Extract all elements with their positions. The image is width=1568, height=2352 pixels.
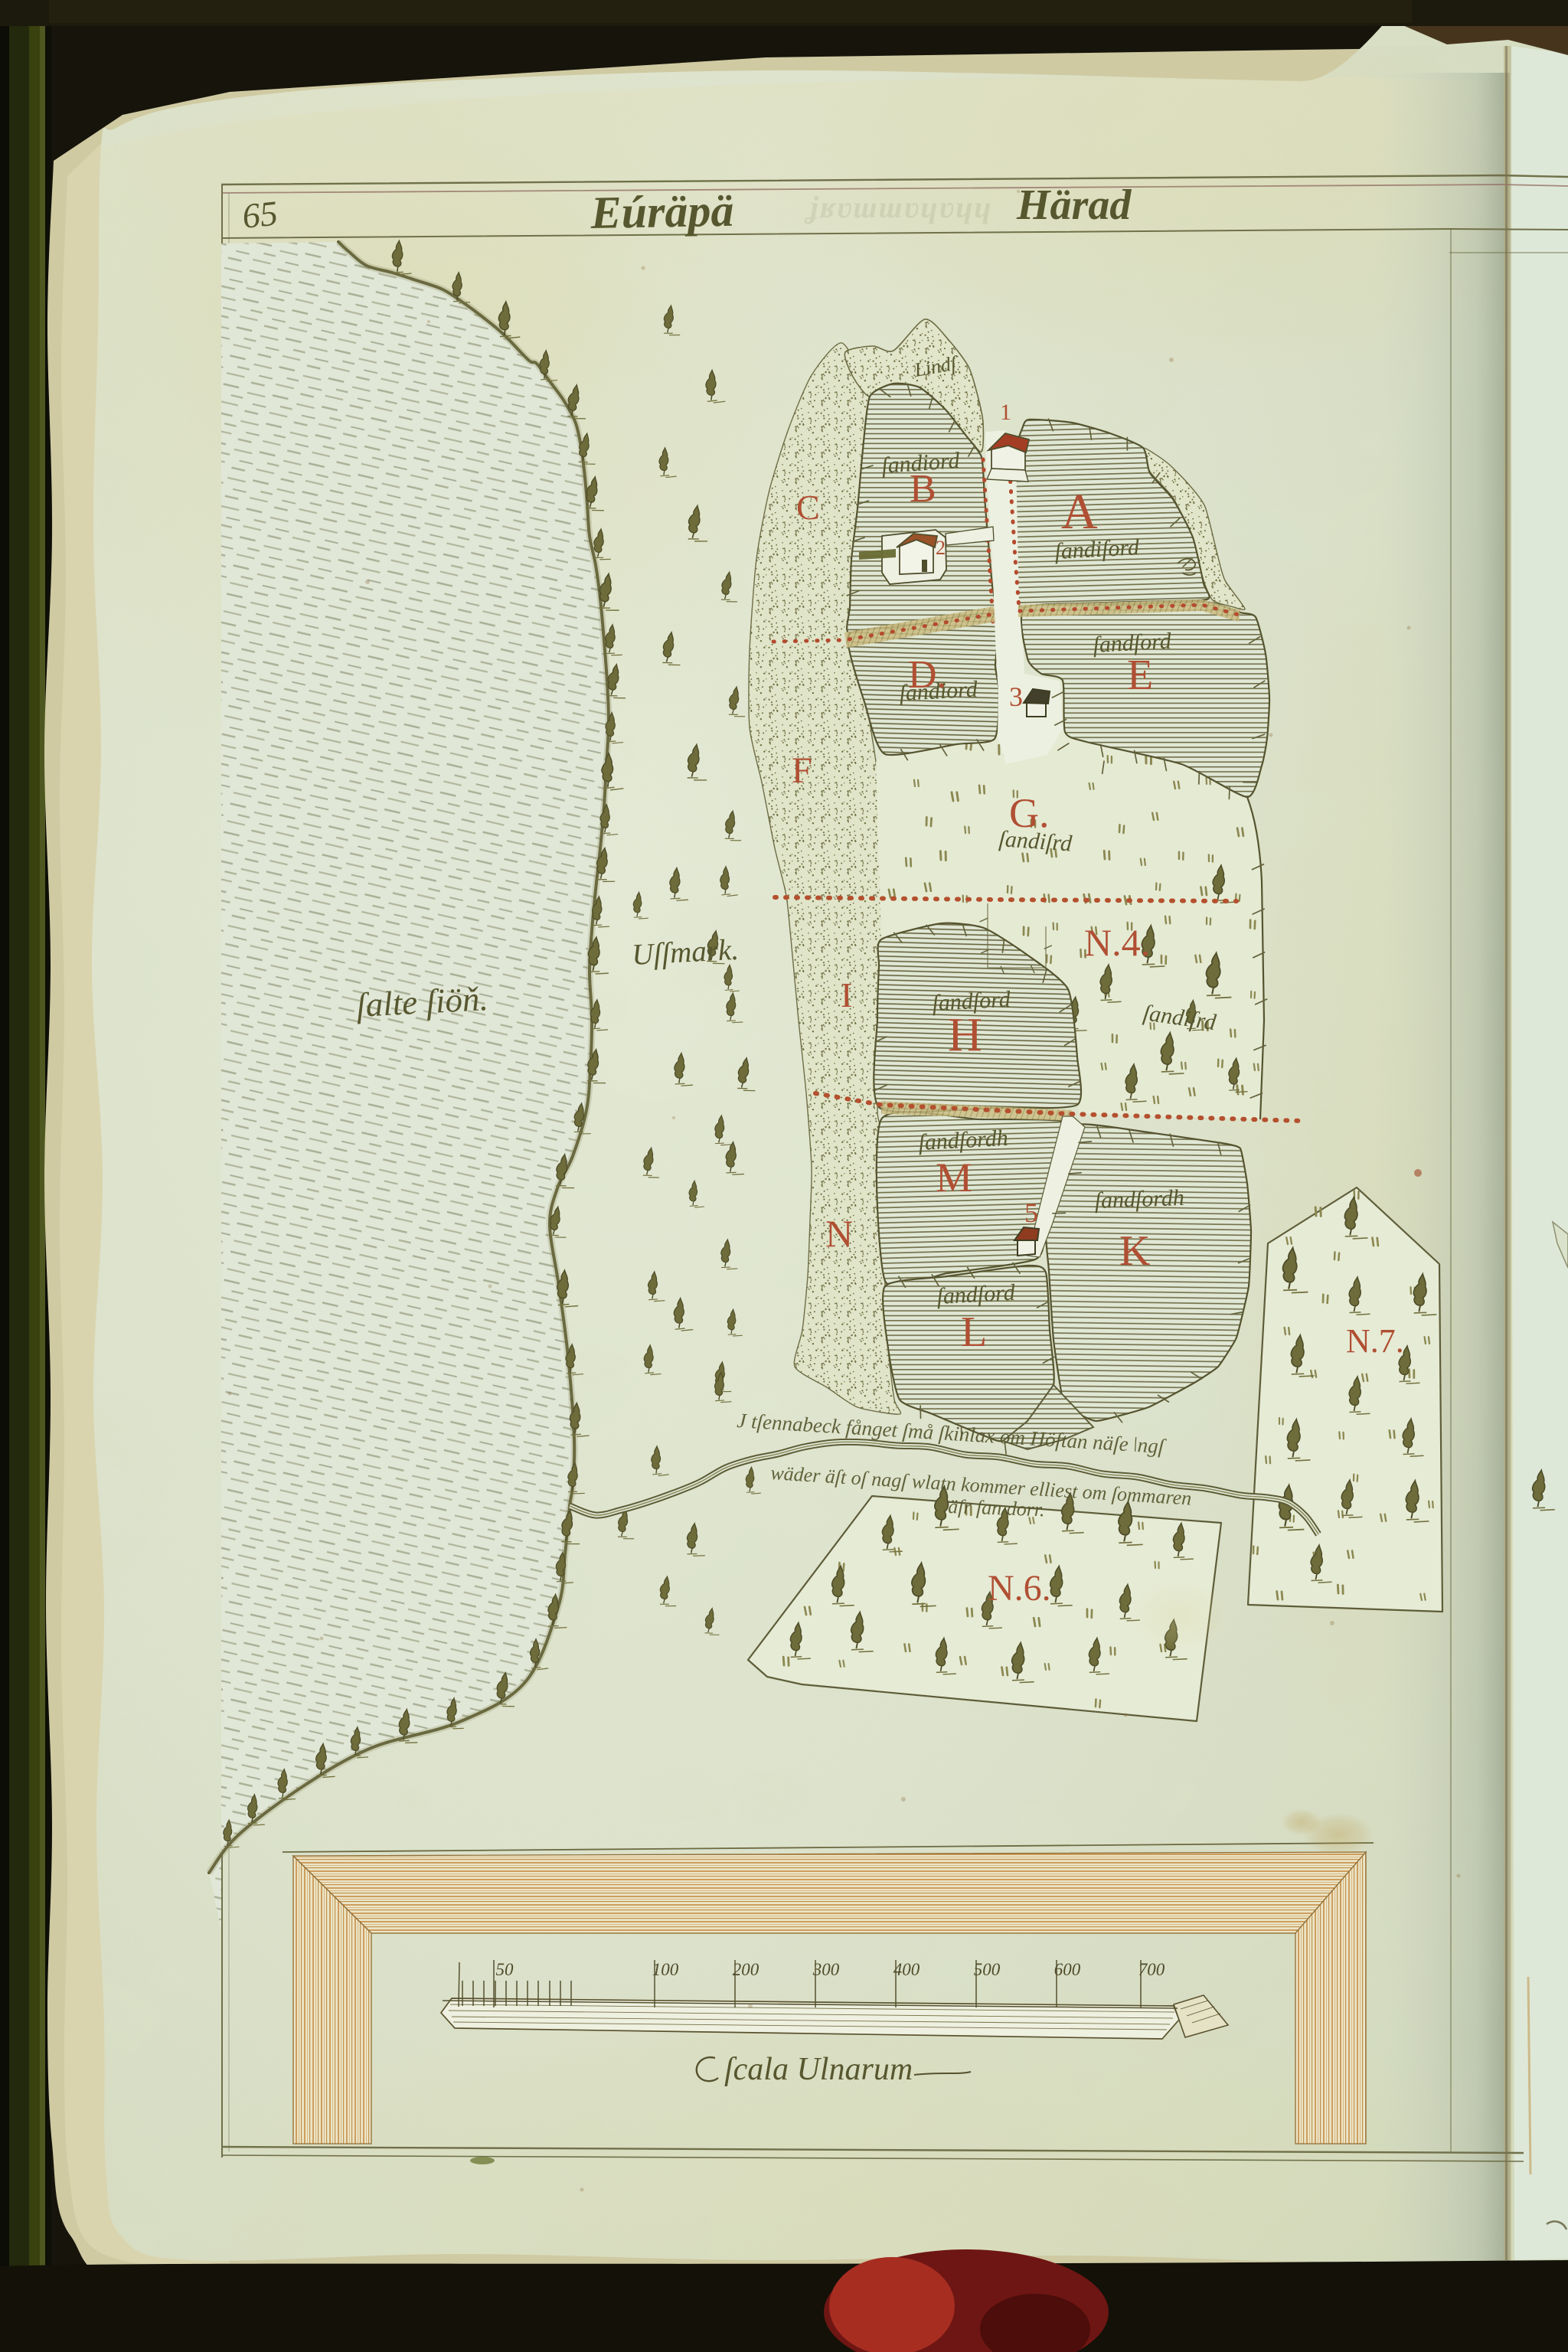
svg-text:L: L xyxy=(961,1308,987,1356)
svg-text:2: 2 xyxy=(936,537,946,559)
svg-text:5: 5 xyxy=(1024,1197,1038,1228)
svg-text:ſandſordh: ſandſordh xyxy=(1094,1185,1184,1214)
svg-text:ſcala Ulnarum: ſcala Ulnarum xyxy=(724,2052,913,2087)
svg-text:M: M xyxy=(936,1155,972,1200)
svg-text:400: 400 xyxy=(893,1960,920,1979)
svg-text:H: H xyxy=(948,1009,982,1061)
svg-text:N.4.: N.4. xyxy=(1084,921,1150,964)
svg-text:ſandſordh: ſandſordh xyxy=(918,1125,1009,1155)
svg-text:700: 700 xyxy=(1138,1960,1165,1979)
svg-text:3: 3 xyxy=(1009,681,1023,712)
svg-text:1: 1 xyxy=(1000,400,1011,425)
svg-text:Härad: Härad xyxy=(1016,181,1132,229)
svg-text:ſandſord: ſandſord xyxy=(936,1280,1017,1309)
svg-text:200: 200 xyxy=(733,1960,759,1979)
svg-text:E: E xyxy=(1127,652,1153,699)
svg-text:300: 300 xyxy=(812,1960,840,1979)
svg-text:äſr ſan dorr.: äſr ſan dorr. xyxy=(948,1495,1045,1521)
svg-text:ſandiſord: ſandiſord xyxy=(1054,534,1141,564)
svg-text:ʝʁʋɯɯʋɥʋɥɥ: ʝʁʋɯɯʋɥʋɥɥ xyxy=(804,190,993,224)
svg-text:65: 65 xyxy=(240,193,279,236)
svg-text:N.6.: N.6. xyxy=(988,1568,1051,1609)
svg-text:Uſſmark.: Uſſmark. xyxy=(631,933,740,972)
svg-text:ſandſord: ſandſord xyxy=(932,987,1012,1016)
svg-text:Eúräpä: Eúräpä xyxy=(590,185,734,238)
svg-text:N: N xyxy=(825,1212,853,1255)
svg-text:C: C xyxy=(796,488,820,527)
svg-text:A: A xyxy=(1061,484,1098,540)
svg-text:I: I xyxy=(841,975,852,1014)
svg-text:500: 500 xyxy=(974,1960,1001,1979)
svg-text:ſandiſrd: ſandiſrd xyxy=(998,826,1074,857)
svg-text:ſandſord: ſandſord xyxy=(1093,629,1173,658)
svg-text:N.7.: N.7. xyxy=(1346,1322,1404,1360)
svg-text:K: K xyxy=(1119,1227,1150,1275)
svg-text:100: 100 xyxy=(652,1960,679,1979)
svg-text:F: F xyxy=(792,750,812,791)
svg-text:50: 50 xyxy=(496,1960,514,1979)
svg-text:600: 600 xyxy=(1054,1960,1081,1979)
svg-text:ſalte ſiöň.: ſalte ſiöň. xyxy=(355,979,489,1024)
svg-text:ſandiord: ſandiord xyxy=(899,677,979,706)
